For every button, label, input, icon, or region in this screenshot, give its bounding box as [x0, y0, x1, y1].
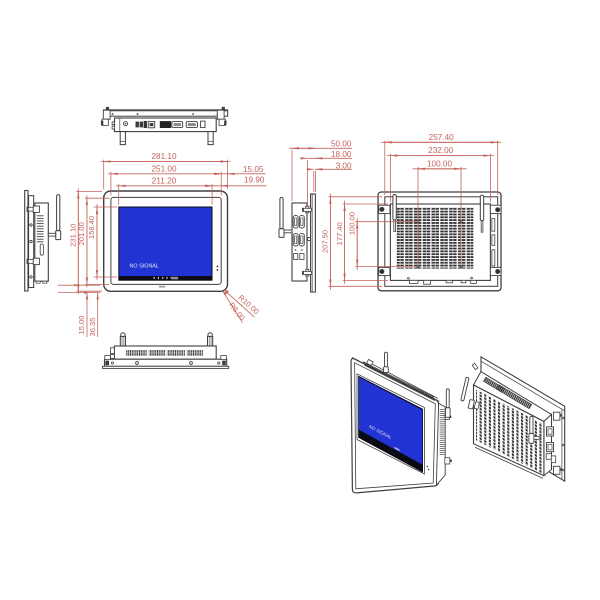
svg-text:281.10: 281.10: [151, 152, 176, 161]
svg-text:36.35: 36.35: [88, 317, 97, 336]
svg-text:201.00: 201.00: [77, 222, 86, 245]
svg-text:257.40: 257.40: [429, 133, 454, 142]
svg-text:15.05: 15.05: [243, 165, 264, 174]
svg-text:3.00: 3.00: [336, 161, 352, 170]
svg-text:158.40: 158.40: [87, 216, 96, 239]
svg-text:177.40: 177.40: [335, 222, 344, 245]
svg-text:100.00: 100.00: [347, 212, 356, 235]
svg-text:211.20: 211.20: [152, 176, 177, 185]
svg-text:19.90: 19.90: [244, 176, 265, 185]
svg-text:15.00: 15.00: [77, 315, 86, 334]
svg-text:50.00: 50.00: [331, 140, 352, 149]
svg-text:100.00: 100.00: [427, 159, 452, 168]
svg-text:18.00: 18.00: [331, 150, 352, 159]
svg-text:207.50: 207.50: [321, 230, 330, 253]
svg-text:232.00: 232.00: [428, 146, 453, 155]
svg-text:NO SIGNAL: NO SIGNAL: [130, 264, 159, 270]
svg-text:251.00: 251.00: [151, 164, 176, 173]
